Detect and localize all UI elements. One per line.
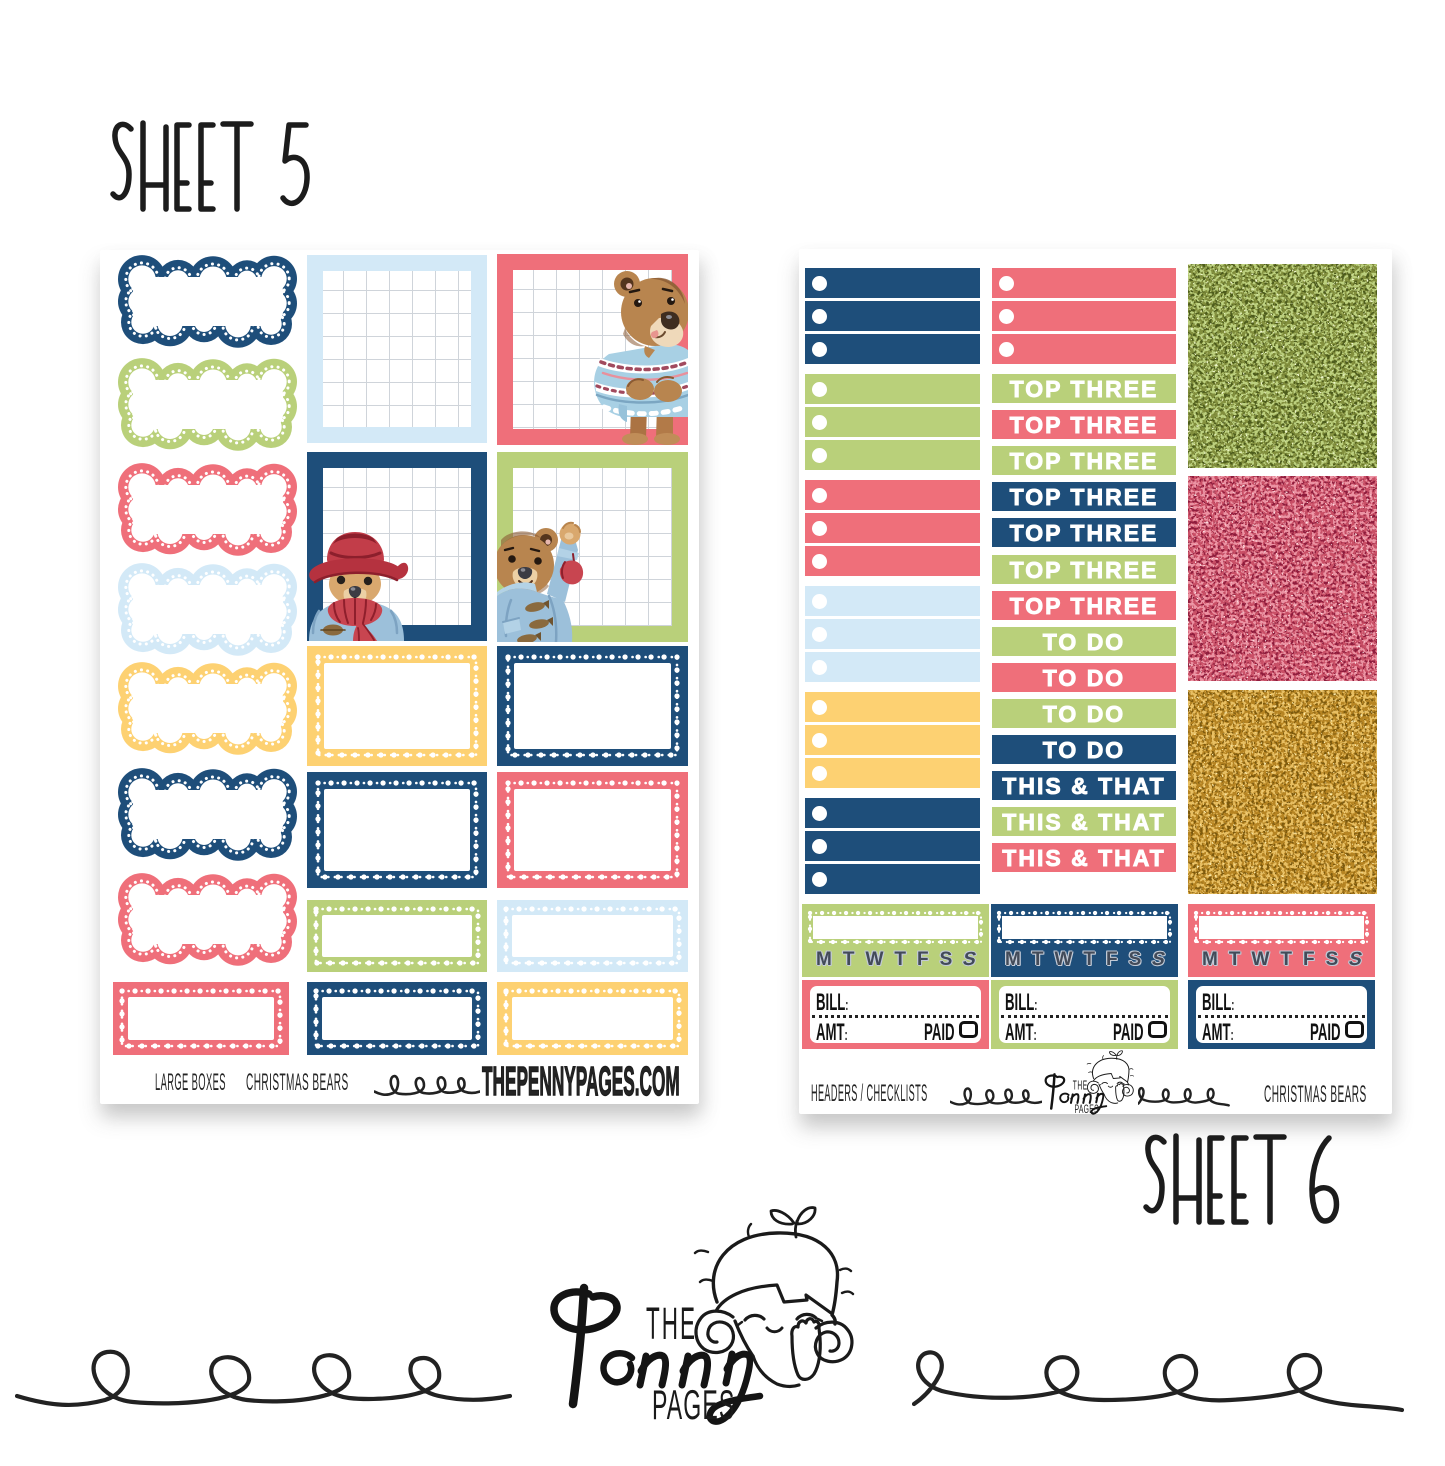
svg-text:THE: THE	[646, 1299, 697, 1350]
svg-text:PAGES: PAGES	[652, 1382, 735, 1429]
